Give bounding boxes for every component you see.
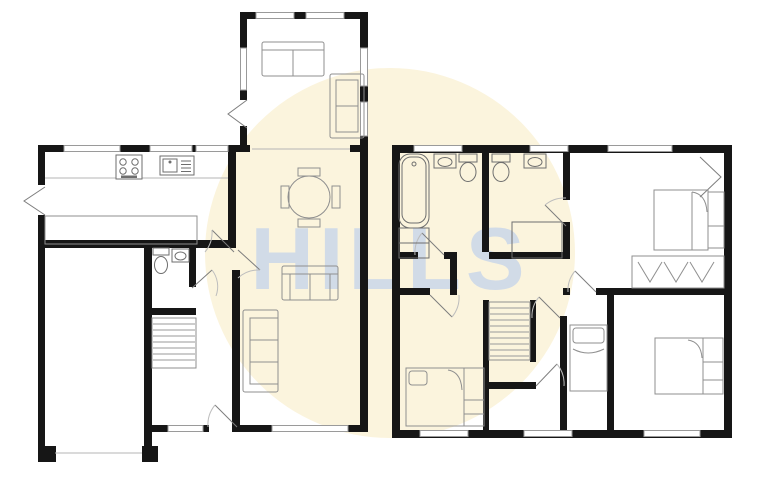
bedroom3-furniture xyxy=(570,325,607,391)
staircase-ground xyxy=(152,318,196,368)
single-bed xyxy=(570,325,607,391)
bedroom1-furniture xyxy=(632,190,724,288)
landing-door-arc xyxy=(536,364,564,386)
wc-fixtures xyxy=(153,248,189,274)
kitchen-fixtures xyxy=(45,155,228,244)
sofa-conservatory-top xyxy=(262,42,324,76)
bedside-unit xyxy=(703,338,723,394)
bedroom4-furniture xyxy=(655,338,723,394)
wardrobe xyxy=(632,256,724,288)
closet-door xyxy=(700,157,721,197)
toilet-icon xyxy=(153,248,169,274)
conservatory-door xyxy=(228,100,247,128)
hob-icon xyxy=(116,155,142,179)
basin-icon xyxy=(172,249,189,262)
double-bed xyxy=(654,190,708,250)
kitchen-side-door xyxy=(24,187,45,215)
sink-icon xyxy=(160,156,194,175)
island-counter xyxy=(45,216,197,244)
double-bed xyxy=(655,338,703,394)
floorplan-image: HILLS xyxy=(0,0,768,503)
bedside-unit xyxy=(708,192,724,248)
